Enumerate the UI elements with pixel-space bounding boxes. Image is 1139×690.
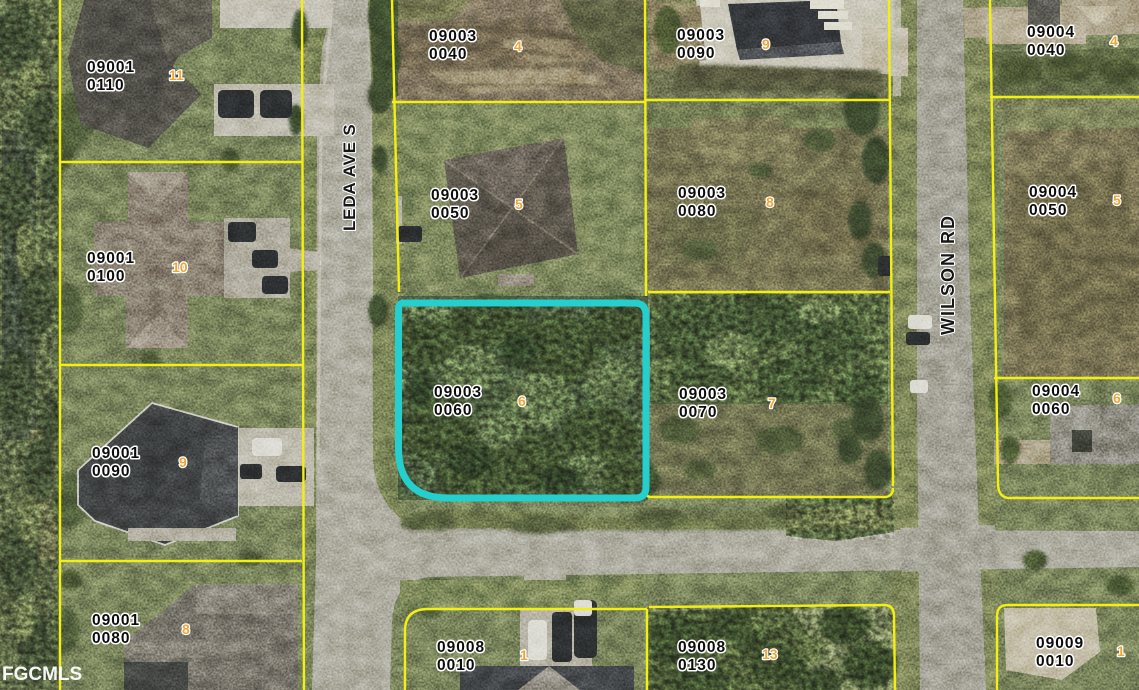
- svg-text:0010: 0010: [1036, 653, 1074, 670]
- svg-text:09009: 09009: [1036, 635, 1084, 652]
- svg-text:5: 5: [515, 196, 523, 212]
- svg-text:8: 8: [766, 194, 774, 210]
- svg-text:0080: 0080: [678, 203, 716, 220]
- svg-text:0100: 0100: [87, 268, 125, 285]
- svg-text:0070: 0070: [679, 404, 717, 421]
- svg-text:5: 5: [1113, 192, 1121, 208]
- svg-text:0080: 0080: [92, 630, 130, 647]
- svg-text:09001: 09001: [87, 250, 135, 267]
- svg-text:09004: 09004: [1032, 383, 1080, 400]
- svg-text:09008: 09008: [437, 639, 485, 656]
- svg-text:11: 11: [169, 67, 184, 83]
- svg-text:09001: 09001: [92, 445, 140, 462]
- svg-text:6: 6: [518, 393, 526, 409]
- svg-text:LEDA AVE S: LEDA AVE S: [340, 124, 359, 232]
- svg-text:0040: 0040: [429, 46, 467, 63]
- svg-text:1: 1: [520, 647, 528, 663]
- svg-text:FGCMLS: FGCMLS: [2, 664, 82, 685]
- svg-text:0090: 0090: [92, 463, 130, 480]
- svg-text:09001: 09001: [87, 59, 135, 76]
- svg-text:0130: 0130: [678, 657, 716, 674]
- svg-text:4: 4: [514, 38, 522, 54]
- svg-text:09003: 09003: [431, 187, 479, 204]
- svg-text:0060: 0060: [434, 402, 472, 419]
- svg-text:4: 4: [1110, 33, 1118, 49]
- svg-text:0040: 0040: [1027, 42, 1065, 59]
- svg-text:0090: 0090: [677, 45, 715, 62]
- svg-text:0010: 0010: [437, 657, 475, 674]
- svg-text:WILSON RD: WILSON RD: [938, 214, 958, 335]
- svg-text:09008: 09008: [678, 639, 726, 656]
- svg-text:7: 7: [768, 395, 776, 411]
- svg-text:10: 10: [172, 259, 188, 275]
- svg-text:0050: 0050: [431, 205, 469, 222]
- svg-text:0050: 0050: [1029, 202, 1067, 219]
- svg-text:0110: 0110: [87, 77, 125, 94]
- svg-text:09003: 09003: [679, 386, 727, 403]
- svg-text:8: 8: [182, 621, 190, 637]
- svg-text:09003: 09003: [677, 27, 725, 44]
- svg-text:09003: 09003: [434, 384, 482, 401]
- svg-text:09003: 09003: [678, 185, 726, 202]
- svg-text:1: 1: [1117, 643, 1125, 659]
- svg-text:9: 9: [762, 36, 770, 52]
- svg-text:9: 9: [179, 454, 187, 470]
- svg-text:09003: 09003: [429, 28, 477, 45]
- svg-text:09004: 09004: [1027, 24, 1075, 41]
- svg-text:0060: 0060: [1032, 401, 1070, 418]
- svg-text:09001: 09001: [92, 612, 140, 629]
- svg-text:09004: 09004: [1029, 184, 1077, 201]
- svg-text:13: 13: [762, 646, 778, 662]
- svg-text:6: 6: [1113, 390, 1121, 406]
